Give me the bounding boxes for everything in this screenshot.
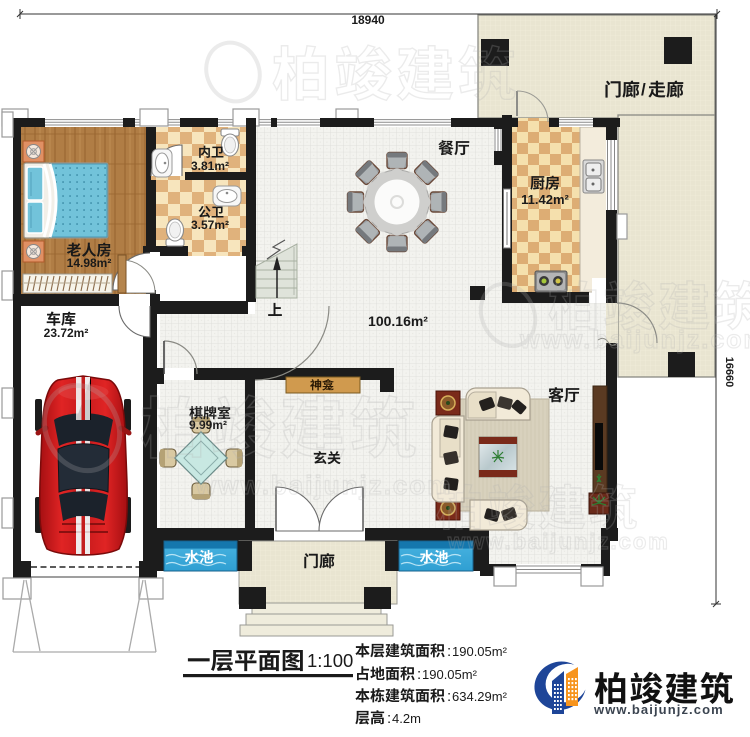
- svg-text:634.29m²: 634.29m²: [452, 689, 508, 704]
- svg-text:4.2m: 4.2m: [392, 711, 421, 726]
- svg-text:16660: 16660: [723, 357, 735, 388]
- svg-text:11.42m²: 11.42m²: [521, 192, 569, 207]
- svg-text::: :: [447, 688, 451, 705]
- svg-text:www.baijunjz.com: www.baijunjz.com: [519, 326, 750, 354]
- svg-text:190.05m²: 190.05m²: [422, 667, 478, 682]
- svg-text:www.baijunjz.com: www.baijunjz.com: [447, 529, 670, 554]
- svg-text:190.05m²: 190.05m²: [452, 644, 508, 659]
- svg-text:www.baijunjz.com: www.baijunjz.com: [593, 702, 724, 717]
- svg-text::: :: [387, 710, 391, 727]
- svg-text:18940: 18940: [351, 13, 385, 27]
- svg-text:3.57m²: 3.57m²: [191, 218, 229, 232]
- svg-text::: :: [447, 643, 451, 660]
- svg-text:1:100: 1:100: [307, 650, 353, 671]
- svg-text::: :: [417, 666, 421, 683]
- svg-text:23.72m²: 23.72m²: [44, 326, 89, 340]
- svg-text:3.81m²: 3.81m²: [191, 159, 229, 173]
- svg-text:/: /: [641, 80, 646, 99]
- svg-text:www.baijunjz.com: www.baijunjz.com: [195, 470, 452, 500]
- svg-text:100.16m²: 100.16m²: [368, 313, 428, 329]
- svg-text:14.98m²: 14.98m²: [67, 256, 112, 270]
